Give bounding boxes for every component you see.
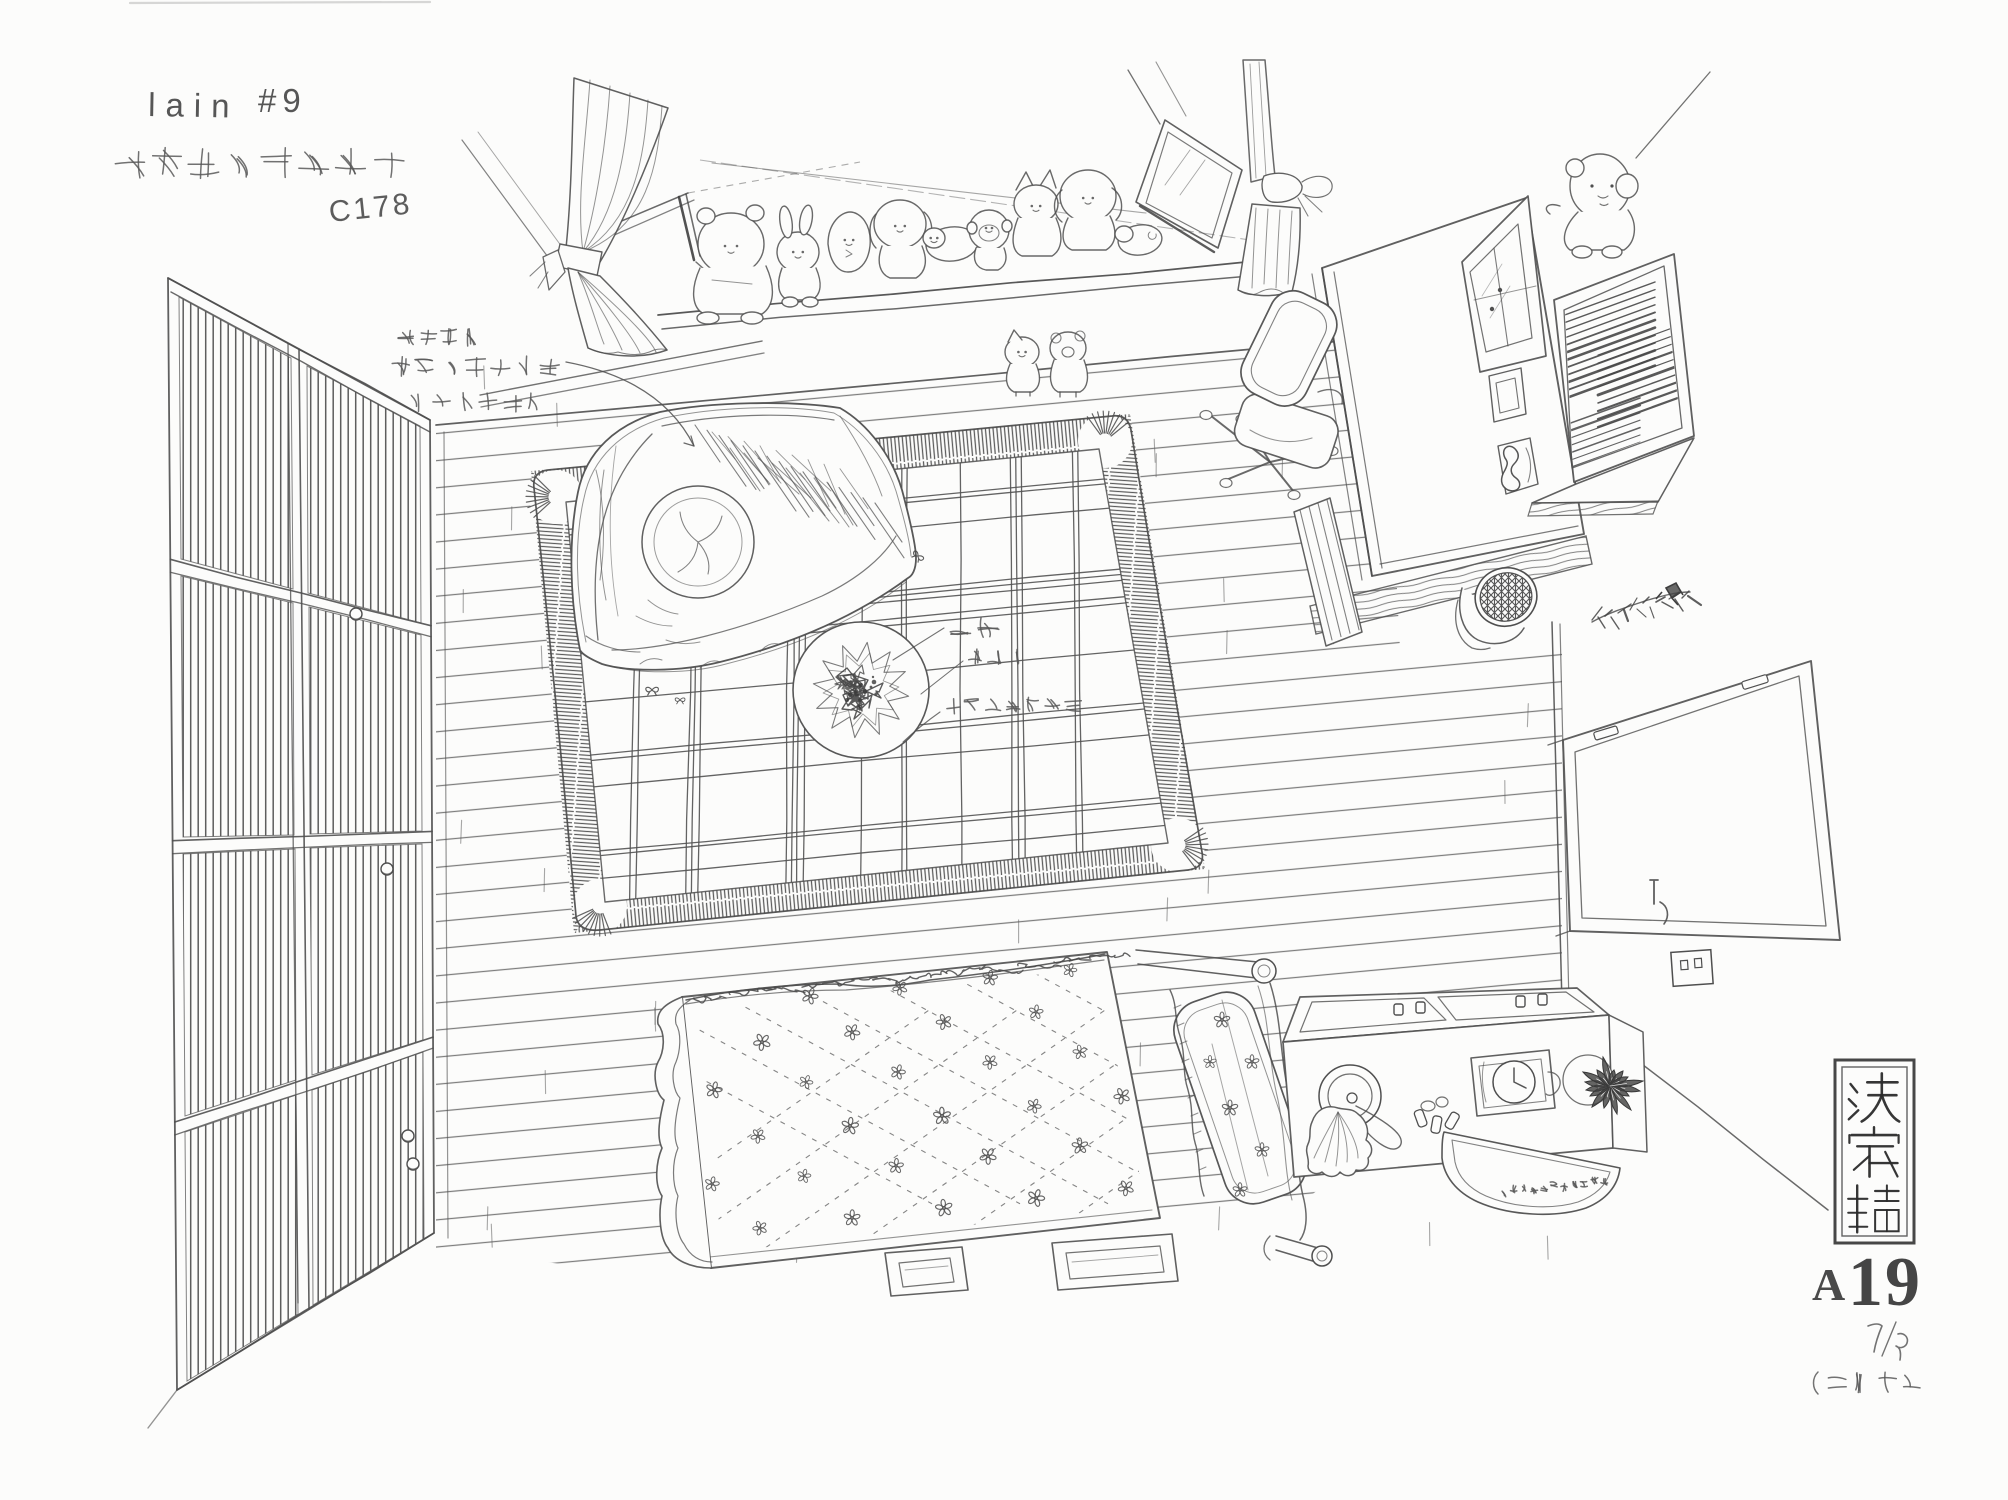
svg-text:#9: #9 <box>258 82 307 119</box>
svg-text:lain: lain <box>148 86 240 125</box>
svg-text:19: 19 <box>1848 1244 1922 1321</box>
svg-text:A: A <box>1812 1259 1845 1310</box>
